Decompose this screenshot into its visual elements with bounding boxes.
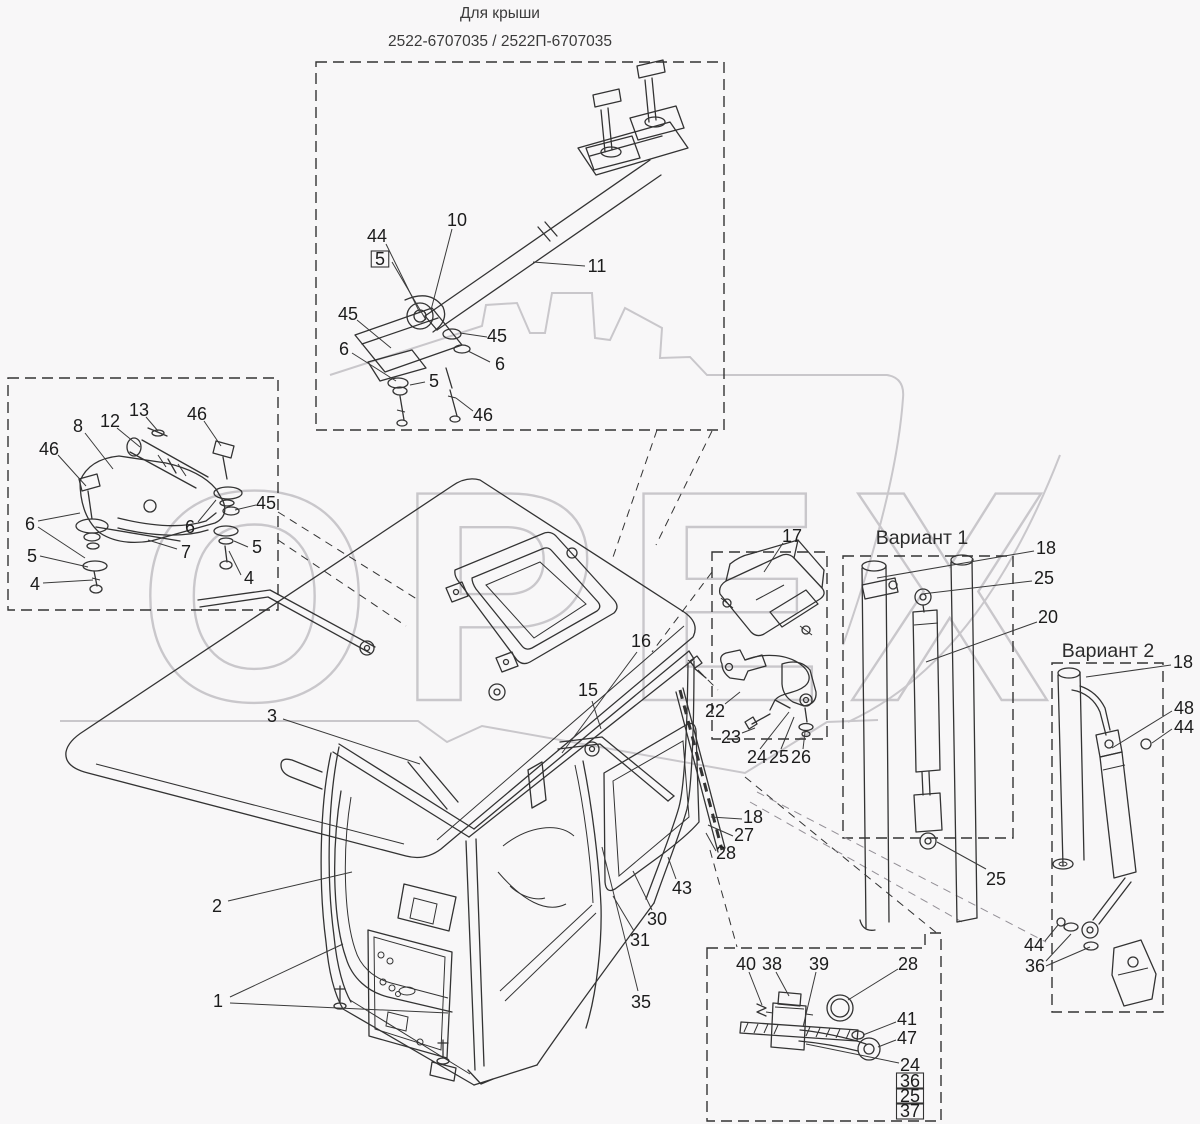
drawing-stroke [90, 585, 102, 593]
drawing-stroke [860, 920, 875, 930]
callout-46: 46 [473, 405, 493, 425]
drawing-stroke [386, 1012, 408, 1031]
drawing-stroke [710, 850, 737, 947]
variant1-title: Вариант 1 [876, 527, 968, 549]
drawing-stroke [400, 396, 404, 420]
callout-30: 30 [647, 909, 667, 929]
callout-6: 6 [25, 514, 35, 534]
leader-line [456, 398, 473, 411]
drawing-stroke [775, 1007, 804, 1009]
callout-18: 18 [743, 807, 763, 827]
leader-line [460, 333, 487, 337]
callout-25: 25 [986, 869, 1006, 889]
callout-1: 1 [213, 991, 223, 1011]
drawing-stroke [88, 491, 92, 519]
assembly-torsion-bar [355, 60, 688, 426]
callout-35: 35 [631, 992, 651, 1012]
drawing-stroke [668, 796, 674, 801]
drawing-stroke [446, 368, 452, 388]
leader-line [878, 1040, 896, 1047]
part-number: 2522-6707035 / 2522П-6707035 [388, 33, 612, 50]
callout-45: 45 [338, 304, 358, 324]
callout-36: 36 [1025, 956, 1045, 976]
watermark-text: ОРЕХ [138, 428, 1076, 764]
leader-line [392, 262, 426, 320]
drawing-stroke [914, 793, 942, 832]
callout-6: 6 [495, 354, 505, 374]
drawing-stroke [345, 797, 448, 998]
drawing-stroke [1128, 957, 1138, 967]
drawing-stroke [1141, 739, 1151, 749]
drawing-stroke [87, 543, 99, 549]
leader-line [230, 944, 343, 997]
callout-6: 6 [339, 339, 349, 359]
drawing-stroke [578, 122, 688, 175]
leader-line [431, 229, 452, 310]
drawing-stroke [1103, 765, 1125, 770]
drawing-stroke [397, 420, 407, 426]
drawing-stroke [500, 905, 592, 991]
callout-6: 6 [185, 517, 195, 537]
callout-13: 13 [129, 400, 149, 420]
callout-45: 45 [487, 326, 507, 346]
callout-5: 5 [429, 371, 439, 391]
callout-40: 40 [736, 954, 756, 974]
drawing-stroke [1064, 923, 1078, 931]
callout-47: 47 [897, 1028, 917, 1048]
callout-8: 8 [73, 416, 83, 436]
drawing-stroke [454, 345, 470, 353]
drawing-stroke [399, 987, 415, 995]
leader-line [38, 527, 85, 558]
callout-12: 12 [100, 411, 120, 431]
leader-line [533, 262, 585, 266]
diagram-page: ОРЕХ [0, 0, 1200, 1124]
drawing-stroke [652, 78, 656, 120]
leader-line [468, 351, 490, 362]
leader-line [848, 969, 898, 1000]
leader-line [937, 842, 986, 869]
callout-38: 38 [762, 954, 782, 974]
callout-28: 28 [716, 843, 736, 863]
callout-25: 25 [769, 747, 789, 767]
drawing-stroke [1105, 740, 1113, 748]
dashed-box-top [316, 62, 724, 430]
drawing-stroke [468, 1070, 493, 1084]
callout-5: 5 [27, 546, 37, 566]
drawing-stroke [83, 561, 107, 571]
callout-15: 15 [578, 680, 598, 700]
drawing-stroke [368, 350, 426, 381]
callout-44: 44 [1174, 717, 1194, 737]
drawing-stroke [84, 533, 100, 541]
drawing-stroke [362, 318, 438, 344]
drawing-stroke [335, 791, 452, 1012]
drawing-stroke [498, 872, 566, 907]
drawing-stroke [510, 886, 545, 899]
callout-28: 28 [898, 954, 918, 974]
callout-24: 24 [747, 747, 767, 767]
drawing-stroke [957, 918, 977, 922]
callout-20: 20 [1038, 607, 1058, 627]
callout-27: 27 [734, 825, 754, 845]
leader-line [668, 857, 676, 879]
drawing-stroke [799, 1041, 858, 1051]
drawing-stroke [410, 898, 437, 924]
drawing-stroke [450, 416, 460, 422]
leader-line [602, 847, 638, 991]
callout-31: 31 [630, 930, 650, 950]
leader-line [85, 433, 113, 469]
drawing-stroke [389, 985, 395, 991]
drawing-stroke [545, 222, 557, 236]
drawing-stroke [601, 110, 605, 152]
drawing-stroke [608, 108, 612, 150]
drawing-stroke [757, 1004, 766, 1016]
leader-line [228, 872, 352, 901]
drawing-stroke [929, 772, 930, 795]
drawing-stroke [387, 958, 393, 964]
drawing-stroke [398, 884, 456, 931]
drawing-stroke [1087, 927, 1093, 933]
drawing-stroke [750, 802, 962, 922]
page-title: Для крыши [460, 5, 540, 22]
drawing-stroke [474, 1065, 537, 1085]
callout-17: 17 [782, 526, 802, 546]
drawing-stroke [575, 765, 593, 903]
callout-46: 46 [187, 404, 207, 424]
variant2-title: Вариант 2 [1062, 640, 1154, 662]
drawing-stroke [630, 106, 684, 140]
leader-line [806, 1044, 899, 1063]
callout-43: 43 [672, 878, 692, 898]
callout-3: 3 [267, 706, 277, 726]
leader-line [40, 556, 88, 567]
leader-line [58, 455, 86, 486]
callout-2: 2 [212, 896, 222, 916]
drawing-stroke [430, 1062, 456, 1081]
callout-7: 7 [181, 542, 191, 562]
callout-16: 16 [631, 631, 651, 651]
drawing-stroke [538, 227, 550, 241]
callout-25: 25 [1034, 568, 1054, 588]
drawing-stroke [1082, 922, 1098, 938]
leader-line [711, 817, 742, 819]
callout-44: 44 [1024, 935, 1044, 955]
drawing-stroke [1118, 968, 1148, 975]
drawing-stroke [1093, 878, 1125, 920]
leader-line [613, 896, 634, 931]
diagram-canvas: ОРЕХ [0, 0, 1200, 1124]
drawing-stroke [593, 89, 621, 107]
drawing-stroke [333, 752, 469, 837]
callout-18: 18 [1173, 652, 1193, 672]
callout-41: 41 [897, 1009, 917, 1029]
drawing-stroke [503, 828, 574, 846]
callout-23: 23 [721, 727, 741, 747]
drawing-stroke [476, 839, 484, 1066]
drawing-stroke [76, 519, 108, 533]
callout-48: 48 [1174, 698, 1194, 718]
callout-11: 11 [588, 256, 607, 276]
drawing-stroke [925, 838, 931, 844]
drawing-stroke [757, 792, 1046, 942]
drawing-stroke [1080, 672, 1084, 860]
callout-26: 26 [791, 747, 811, 767]
leader-line [863, 1022, 896, 1035]
drawing-stroke [1072, 690, 1106, 735]
leader-line [1152, 729, 1172, 743]
callout-44: 44 [367, 226, 387, 246]
drawing-stroke [1099, 882, 1131, 924]
leader-line [117, 428, 140, 447]
leader-line [386, 244, 420, 313]
drawing-stroke [397, 410, 405, 412]
leader-line [43, 580, 93, 583]
drawing-stroke [920, 833, 936, 849]
callout-45: 45 [256, 493, 276, 513]
leader-line [1086, 665, 1171, 677]
callout-5: 5 [252, 537, 262, 557]
callout-46: 46 [39, 439, 59, 459]
drawing-stroke [96, 764, 404, 844]
leader-line [38, 513, 80, 521]
drawing-stroke [645, 80, 649, 122]
callout-5: 5 [375, 249, 385, 269]
drawing-stroke [1112, 940, 1156, 1006]
drawing-stroke [1080, 686, 1110, 730]
leader-line [410, 382, 425, 385]
drawing-stroke [466, 841, 475, 1070]
drawing-stroke [1057, 918, 1065, 926]
drawing-stroke [425, 160, 650, 316]
leader-line [352, 353, 396, 381]
drawing-stroke [1100, 752, 1136, 878]
drawing-stroke [864, 1044, 874, 1054]
drawing-stroke [378, 952, 384, 958]
callout-39: 39 [809, 954, 829, 974]
leader-line [803, 972, 816, 1027]
callout-22: 22 [705, 701, 725, 721]
callout-4: 4 [30, 574, 40, 594]
leader-line [749, 972, 762, 1005]
drawing-stroke [645, 117, 665, 127]
callout-4: 4 [244, 568, 254, 588]
callout-37: 37 [900, 1101, 920, 1121]
drawing-stroke [922, 772, 923, 795]
leader-line [230, 1003, 448, 1013]
drawing-stroke [831, 999, 849, 1017]
drawing-stroke [450, 390, 457, 416]
leader-line [706, 833, 716, 851]
callout-18: 18 [1036, 538, 1056, 558]
callout-10: 10 [447, 210, 467, 230]
drawing-stroke [505, 913, 596, 1001]
